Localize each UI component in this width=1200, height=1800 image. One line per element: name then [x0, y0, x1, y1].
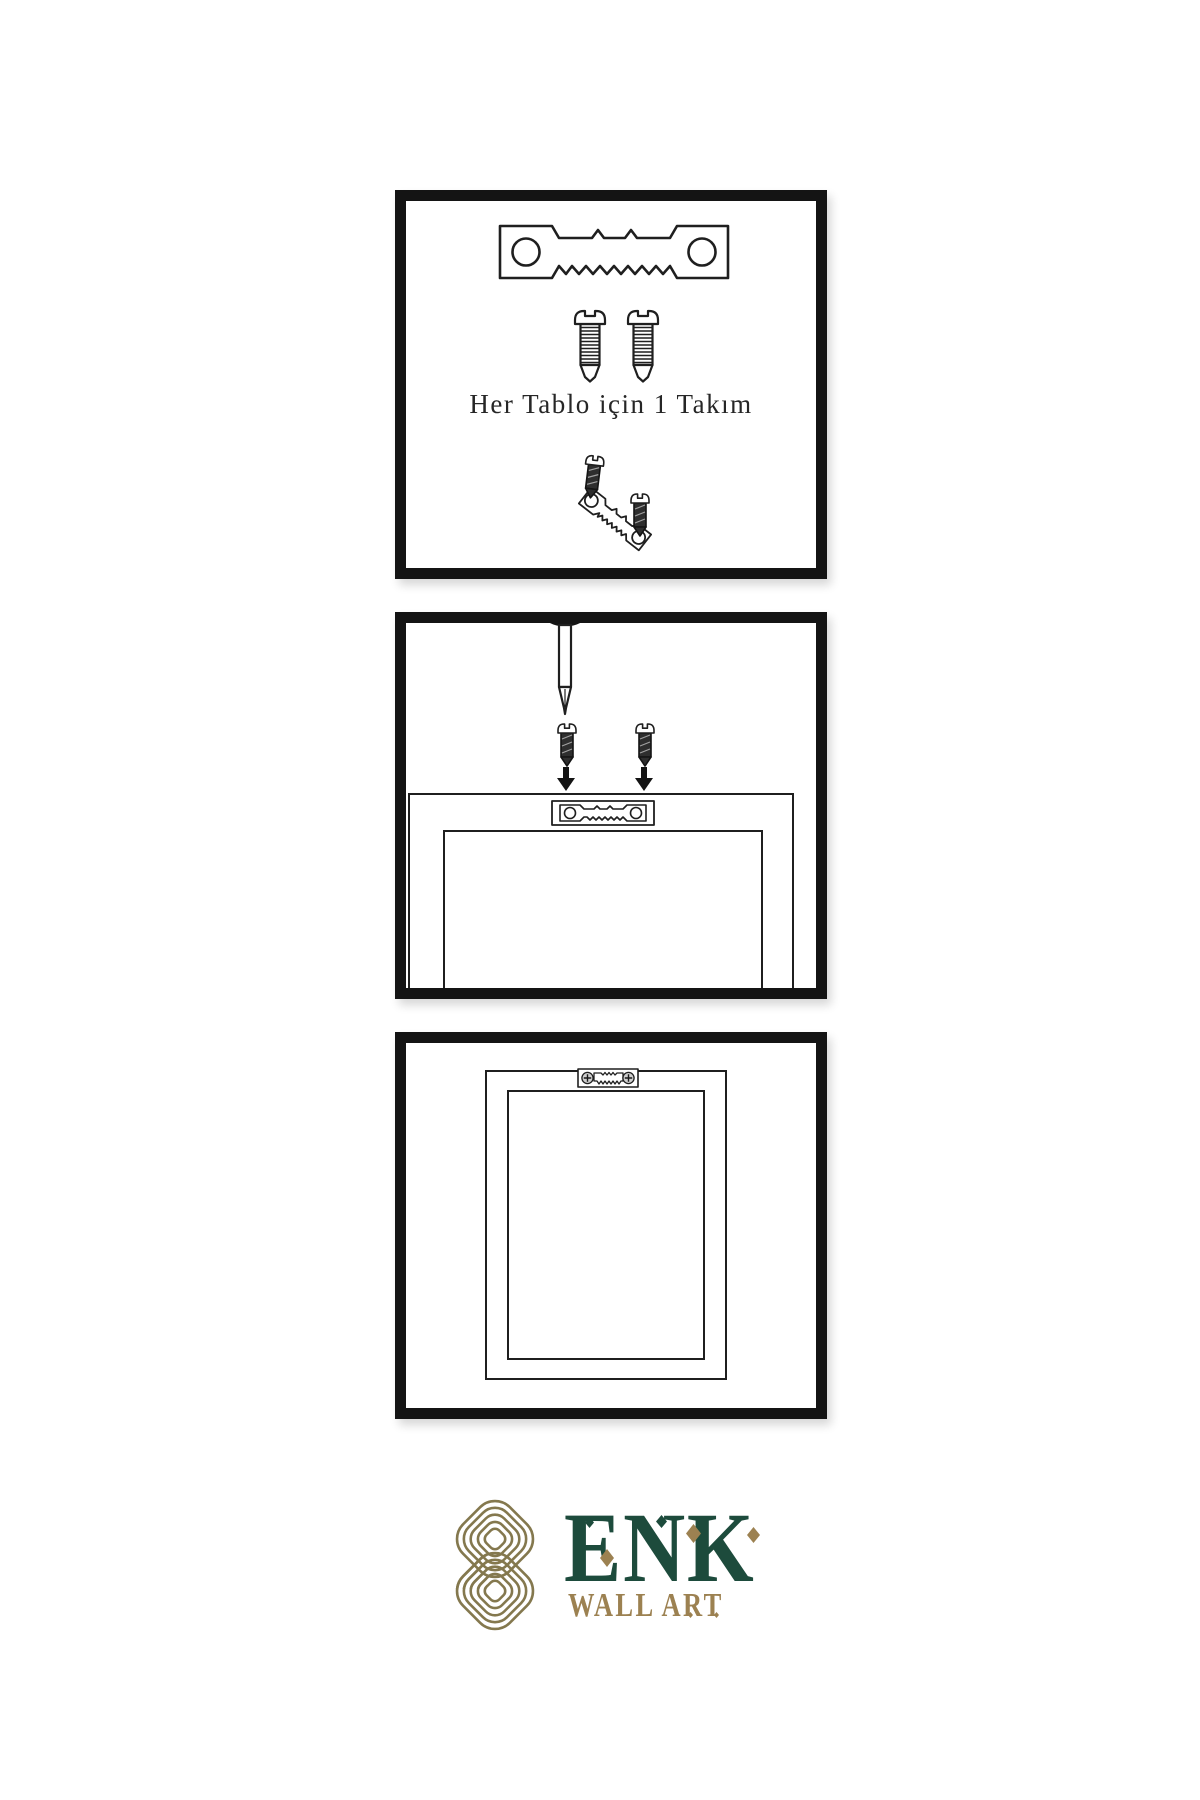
brand-name: ENK [564, 1498, 756, 1598]
screw-icon [572, 307, 608, 383]
arrow-down-icon [556, 767, 576, 791]
step-1-panel: Her Tablo için 1 Takım [395, 190, 827, 579]
screw-icon [556, 722, 578, 768]
nail-icon [541, 615, 589, 719]
screw-icon [634, 722, 656, 768]
screw-icon [625, 307, 661, 383]
frame-back-inner-edge [443, 830, 763, 999]
arrow-down-icon [634, 767, 654, 791]
sawtooth-hanger-with-screws-icon [577, 1068, 639, 1088]
screw-icon [629, 492, 651, 538]
frame-front-inner-edge [507, 1090, 705, 1360]
step-1-caption: Her Tablo için 1 Takım [406, 389, 816, 420]
knot-icon [437, 1493, 553, 1637]
brand-logo: ENK WALL ART [430, 1490, 800, 1650]
sawtooth-hanger-icon [497, 223, 731, 281]
step-2-panel [395, 612, 827, 999]
step-3-panel [395, 1032, 827, 1419]
instruction-sheet: Her Tablo için 1 Takım [0, 0, 1200, 1800]
brand-subtitle: WALL ART [568, 1589, 724, 1623]
sawtooth-hanger-icon [551, 800, 655, 826]
